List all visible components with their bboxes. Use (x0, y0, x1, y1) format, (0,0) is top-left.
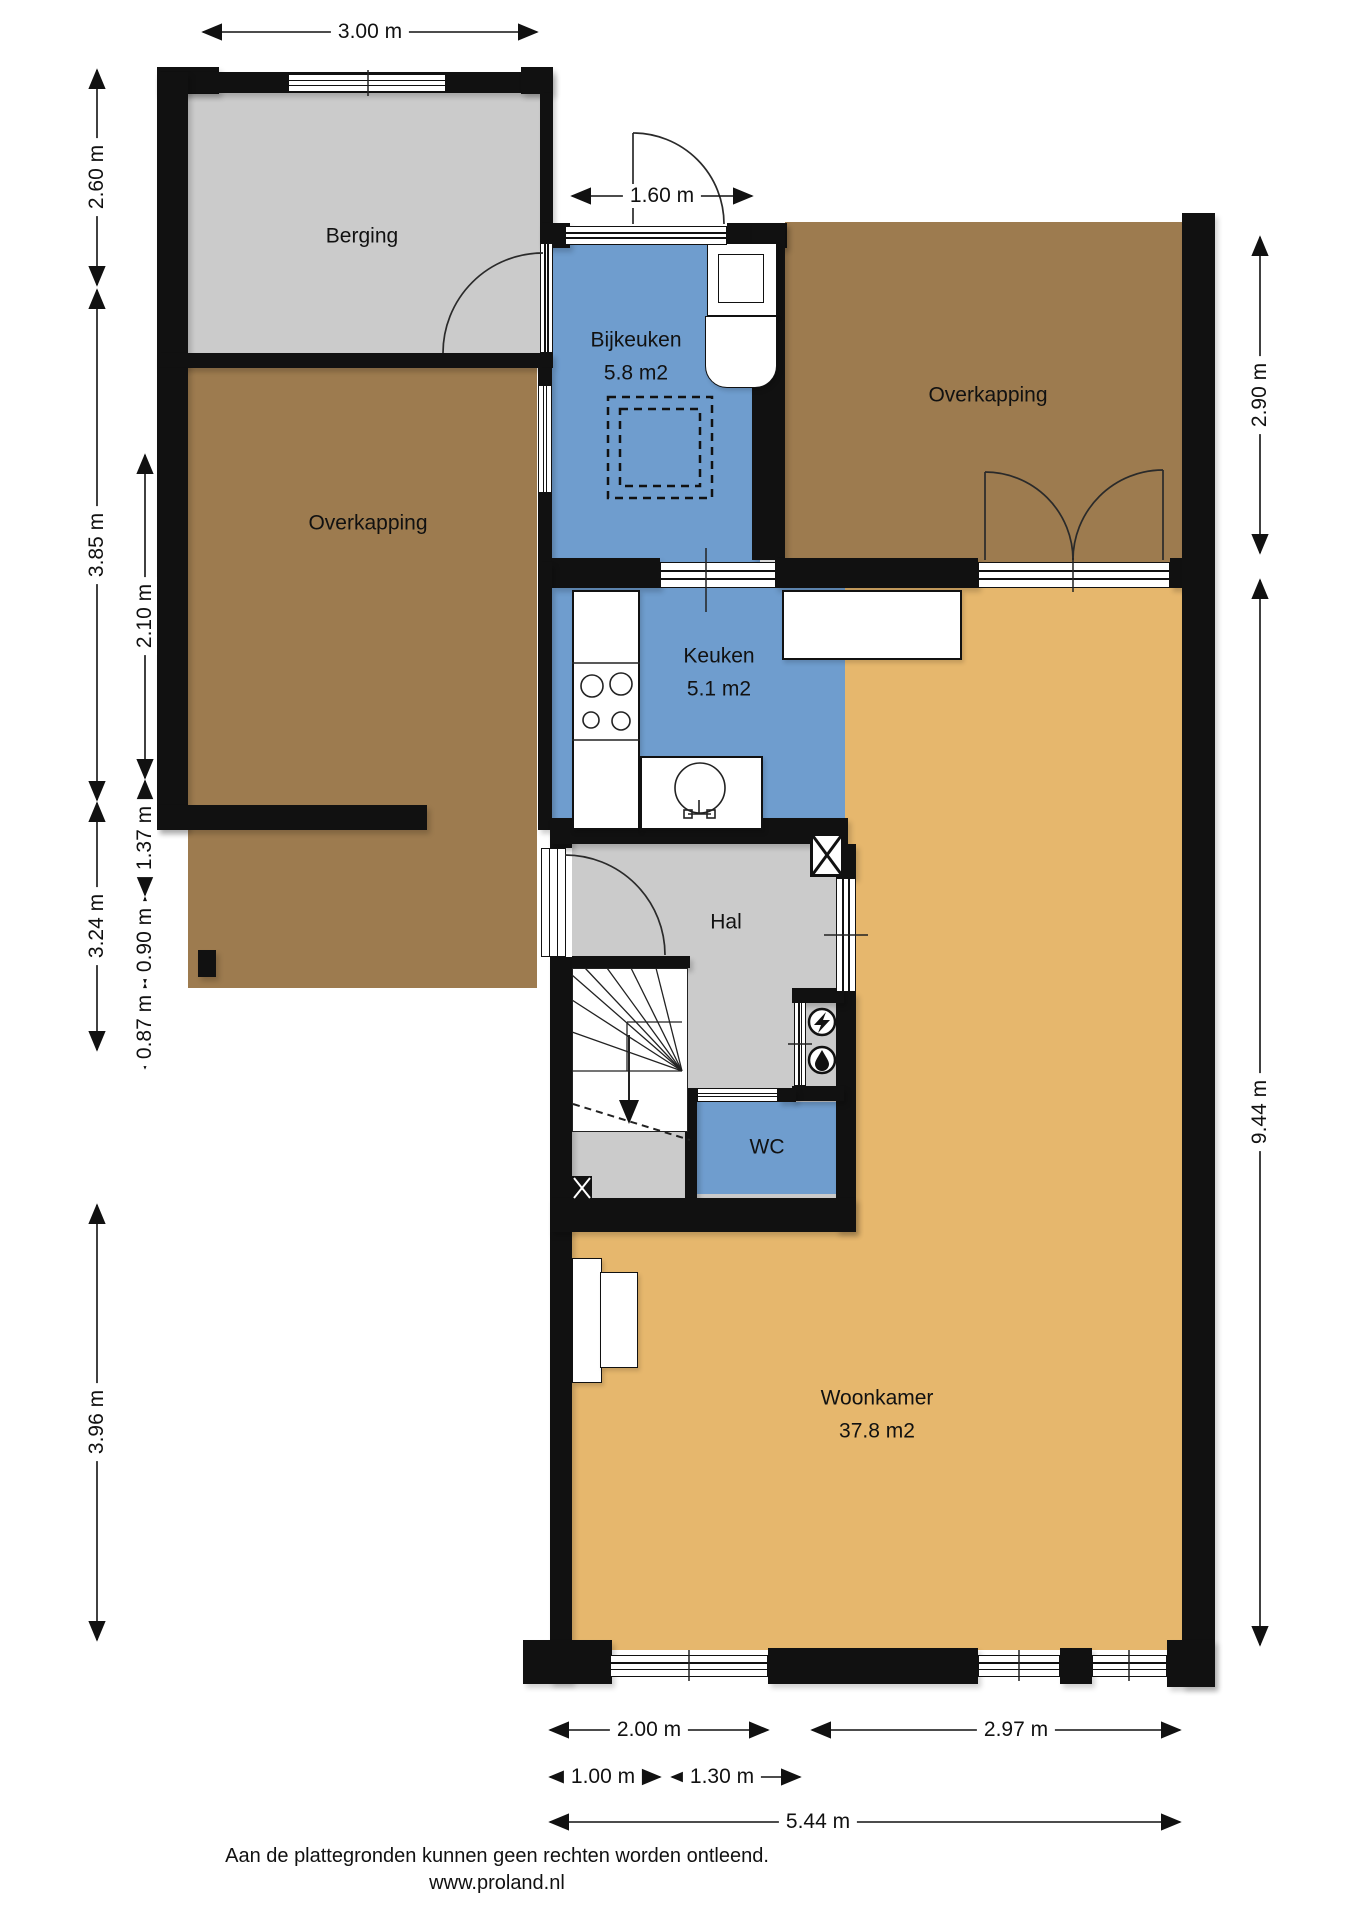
stairs-down-arrow-head (619, 1100, 639, 1124)
dim-left-inner-3: 0.90 m (133, 901, 157, 979)
stairs-linework (572, 968, 690, 1198)
stairs-hatch-x (574, 1178, 590, 1198)
dimension-lines (97, 32, 1260, 1822)
dim-left-inner-4: 0.87 m (133, 988, 157, 1066)
dim-left-outer-2: 3.85 m (85, 506, 109, 584)
window-ticks (368, 70, 1129, 1681)
berging-door-arc (443, 253, 543, 353)
front-door-arc (565, 855, 665, 955)
stove-icon (572, 663, 640, 740)
room-label-wc: WC (750, 1132, 785, 1165)
footer-disclaimer: Aan de plattegronden kunnen geen rechten… (225, 1843, 769, 1870)
room-area-woonkamer: 37.8 m2 (821, 1415, 934, 1448)
entry-door-arc (633, 133, 724, 224)
dim-right-lower: 9.44 m (1248, 1073, 1272, 1151)
footer: Aan de plattegronden kunnen geen rechten… (225, 1843, 769, 1897)
dim-bottom-right: 2.97 m (977, 1718, 1055, 1742)
french-door-arc-right (1073, 470, 1163, 560)
dim-bottom-left: 2.00 m (610, 1718, 688, 1742)
duct-x-icon (813, 836, 841, 874)
electricity-meter-icon (809, 1009, 835, 1035)
room-label-overkapping-left: Overkapping (308, 508, 427, 541)
dim-left-outer-3: 3.24 m (85, 887, 109, 965)
dim-bottom-sub-left: 1.00 m (564, 1765, 642, 1789)
footer-website: www.proland.nl (225, 1870, 769, 1897)
dim-entry-width: 1.60 m (623, 184, 701, 208)
plan-linework (0, 0, 1358, 1920)
room-area-keuken: 5.1 m2 (683, 673, 754, 706)
floorplan: Berging Overkapping Overkapping Bijkeuke… (0, 0, 1358, 1920)
room-label-berging: Berging (326, 221, 398, 254)
door-arcs (443, 133, 1163, 955)
dim-bottom-total: 5.44 m (779, 1810, 857, 1834)
hatch-dashed-rects (608, 397, 712, 498)
dim-left-inner-2: 1.37 m (133, 799, 157, 877)
room-label-overkapping-right: Overkapping (928, 380, 1047, 413)
room-label-woonkamer: Woonkamer 37.8 m2 (821, 1382, 934, 1447)
dim-left-inner-1: 2.10 m (133, 577, 157, 655)
room-label-keuken: Keuken 5.1 m2 (683, 640, 754, 705)
water-meter-icon (809, 1047, 835, 1073)
dim-right-upper: 2.90 m (1248, 356, 1272, 434)
dim-top-width: 3.00 m (331, 20, 409, 44)
french-door-arc-left (985, 472, 1073, 560)
dim-left-outer-4: 3.96 m (85, 1383, 109, 1461)
dim-bottom-sub-right: 1.30 m (683, 1765, 761, 1789)
room-label-bijkeuken: Bijkeuken 5.8 m2 (590, 324, 681, 389)
dim-left-outer-1: 2.60 m (85, 138, 109, 216)
room-area-bijkeuken: 5.8 m2 (590, 357, 681, 390)
sink-icon (675, 763, 725, 818)
room-label-hal: Hal (710, 907, 742, 940)
